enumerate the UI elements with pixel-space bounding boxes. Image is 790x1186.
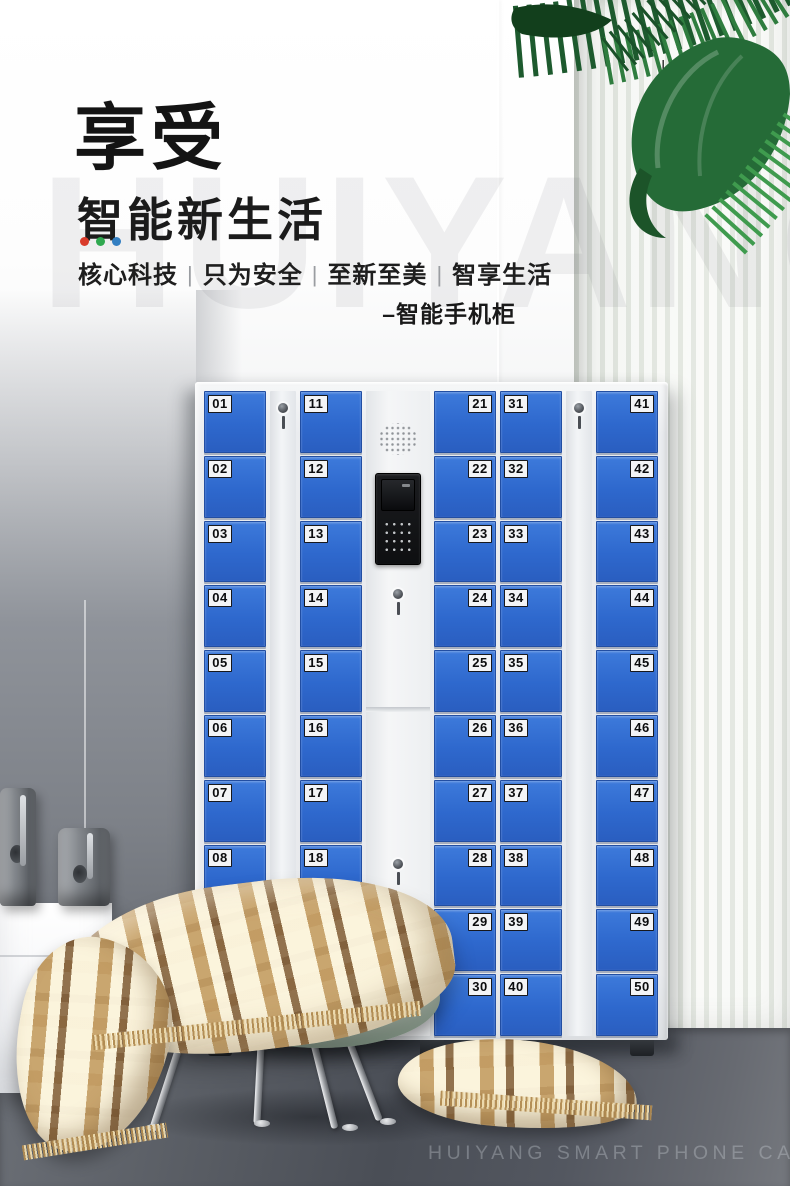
locker-number-plate: 12 bbox=[304, 460, 328, 478]
locker-number-plate: 24 bbox=[468, 589, 492, 607]
monstera-leaf-icon bbox=[632, 37, 790, 211]
locker-number-plate: 05 bbox=[208, 654, 232, 672]
decor-vase bbox=[58, 828, 110, 906]
locker-number-plate: 33 bbox=[504, 525, 528, 543]
locker-number-plate: 22 bbox=[468, 460, 492, 478]
locker-door-31: 31 bbox=[500, 391, 562, 453]
locker-number-plate: 44 bbox=[630, 589, 654, 607]
locker-number-plate: 11 bbox=[304, 395, 328, 413]
locker-column-4: 31323334353637383940 bbox=[500, 391, 562, 1036]
product-label: –智能手机柜 bbox=[78, 295, 516, 329]
green-dot-icon bbox=[96, 237, 105, 246]
locker-door-07: 07 bbox=[204, 780, 266, 842]
cabinet-foot bbox=[630, 1040, 654, 1056]
locker-number-plate: 21 bbox=[468, 395, 492, 413]
locker-number-plate: 32 bbox=[504, 460, 528, 478]
locker-door-03: 03 bbox=[204, 521, 266, 583]
locker-number-plate: 16 bbox=[304, 719, 328, 737]
keyhole-icon bbox=[574, 403, 584, 413]
locker-number-plate: 45 bbox=[630, 654, 654, 672]
palm-leaves-decoration bbox=[460, 0, 790, 300]
locker-number-plate: 31 bbox=[504, 395, 528, 413]
locker-door-01: 01 bbox=[204, 391, 266, 453]
locker-number-plate: 15 bbox=[304, 654, 328, 672]
locker-door-25: 25 bbox=[434, 650, 496, 712]
locker-number-plate: 27 bbox=[468, 784, 492, 802]
decor-vase bbox=[0, 788, 36, 906]
locker-door-48: 48 bbox=[596, 845, 658, 907]
locker-number-plate: 49 bbox=[630, 913, 654, 931]
locker-number-plate: 40 bbox=[504, 978, 528, 996]
locker-door-33: 33 bbox=[500, 521, 562, 583]
tagline-segment: 至新至美 bbox=[327, 262, 427, 289]
stool-leg-cap bbox=[380, 1118, 396, 1125]
locker-door-04: 04 bbox=[204, 585, 266, 647]
locker-door-35: 35 bbox=[500, 650, 562, 712]
locker-number-plate: 39 bbox=[504, 913, 528, 931]
locker-door-16: 16 bbox=[300, 715, 362, 777]
locker-door-24: 24 bbox=[434, 585, 496, 647]
locker-door-11: 11 bbox=[300, 391, 362, 453]
locker-door-23: 23 bbox=[434, 521, 496, 583]
master-lock bbox=[566, 403, 592, 429]
locker-door-14: 14 bbox=[300, 585, 362, 647]
lock-strip-2 bbox=[566, 391, 592, 1036]
tagline-segment: 只为安全 bbox=[203, 262, 303, 289]
accent-dots bbox=[80, 237, 121, 246]
keyhole-icon bbox=[366, 589, 430, 615]
locker-number-plate: 08 bbox=[208, 849, 232, 867]
locker-door-37: 37 bbox=[500, 780, 562, 842]
key-icon bbox=[578, 416, 581, 429]
locker-number-plate: 48 bbox=[630, 849, 654, 867]
center-column-divider bbox=[366, 707, 430, 712]
control-panel bbox=[375, 473, 421, 565]
locker-number-plate: 30 bbox=[468, 978, 492, 996]
locker-number-plate: 04 bbox=[208, 589, 232, 607]
locker-number-plate: 14 bbox=[304, 589, 328, 607]
locker-door-21: 21 bbox=[434, 391, 496, 453]
locker-column-5: 41424344454647484950 bbox=[596, 391, 658, 1036]
locker-door-42: 42 bbox=[596, 456, 658, 518]
red-dot-icon bbox=[80, 237, 89, 246]
locker-door-43: 43 bbox=[596, 521, 658, 583]
locker-number-plate: 42 bbox=[630, 460, 654, 478]
locker-number-plate: 18 bbox=[304, 849, 328, 867]
locker-door-15: 15 bbox=[300, 650, 362, 712]
locker-door-12: 12 bbox=[300, 456, 362, 518]
locker-number-plate: 13 bbox=[304, 525, 328, 543]
main-heading: 享受 bbox=[74, 102, 228, 178]
locker-number-plate: 37 bbox=[504, 784, 528, 802]
locker-number-plate: 36 bbox=[504, 719, 528, 737]
blue-dot-icon bbox=[112, 237, 121, 246]
locker-number-plate: 34 bbox=[504, 589, 528, 607]
locker-number-plate: 46 bbox=[630, 719, 654, 737]
stool-leg-cap bbox=[342, 1124, 358, 1131]
locker-number-plate: 02 bbox=[208, 460, 232, 478]
camera-screen bbox=[381, 479, 415, 511]
locker-door-50: 50 bbox=[596, 974, 658, 1036]
locker-door-17: 17 bbox=[300, 780, 362, 842]
locker-door-13: 13 bbox=[300, 521, 362, 583]
locker-number-plate: 50 bbox=[630, 978, 654, 996]
locker-number-plate: 25 bbox=[468, 654, 492, 672]
locker-door-34: 34 bbox=[500, 585, 562, 647]
locker-number-plate: 03 bbox=[208, 525, 232, 543]
keyhole-icon bbox=[366, 859, 430, 885]
locker-number-plate: 28 bbox=[468, 849, 492, 867]
stool-leg-cap bbox=[254, 1120, 270, 1127]
locker-door-06: 06 bbox=[204, 715, 266, 777]
tagline-segment: 核心科技 bbox=[78, 262, 178, 289]
locker-door-36: 36 bbox=[500, 715, 562, 777]
locker-door-38: 38 bbox=[500, 845, 562, 907]
locker-door-40: 40 bbox=[500, 974, 562, 1036]
locker-number-plate: 41 bbox=[630, 395, 654, 413]
tagline-separator: | bbox=[312, 262, 319, 287]
locker-number-plate: 47 bbox=[630, 784, 654, 802]
tagline-separator: | bbox=[187, 262, 194, 287]
locker-door-22: 22 bbox=[434, 456, 496, 518]
locker-door-26: 26 bbox=[434, 715, 496, 777]
footer-caption: HUIYANG SMART PHONE CABINET bbox=[428, 1142, 790, 1165]
master-lock bbox=[270, 403, 296, 429]
locker-door-39: 39 bbox=[500, 909, 562, 971]
keypad-icon bbox=[383, 520, 413, 554]
locker-number-plate: 17 bbox=[304, 784, 328, 802]
locker-number-plate: 01 bbox=[208, 395, 232, 413]
locker-door-28: 28 bbox=[434, 845, 496, 907]
speaker-grille-icon bbox=[379, 423, 417, 455]
locker-door-49: 49 bbox=[596, 909, 658, 971]
locker-number-plate: 43 bbox=[630, 525, 654, 543]
locker-door-05: 05 bbox=[204, 650, 266, 712]
locker-door-41: 41 bbox=[596, 391, 658, 453]
locker-door-27: 27 bbox=[434, 780, 496, 842]
locker-number-plate: 06 bbox=[208, 719, 232, 737]
keyhole-icon bbox=[278, 403, 288, 413]
poster: HUIYANG 享受 智能新生活 核心科技|只为安全|至新至美|智享生活 –智能… bbox=[0, 0, 790, 1186]
locker-number-plate: 35 bbox=[504, 654, 528, 672]
locker-door-44: 44 bbox=[596, 585, 658, 647]
locker-door-45: 45 bbox=[596, 650, 658, 712]
tagline-separator: | bbox=[436, 262, 443, 287]
locker-number-plate: 23 bbox=[468, 525, 492, 543]
locker-number-plate: 38 bbox=[504, 849, 528, 867]
locker-number-plate: 26 bbox=[468, 719, 492, 737]
locker-door-02: 02 bbox=[204, 456, 266, 518]
locker-number-plate: 29 bbox=[468, 913, 492, 931]
locker-door-47: 47 bbox=[596, 780, 658, 842]
locker-door-46: 46 bbox=[596, 715, 658, 777]
key-icon bbox=[282, 416, 285, 429]
locker-number-plate: 07 bbox=[208, 784, 232, 802]
locker-door-32: 32 bbox=[500, 456, 562, 518]
